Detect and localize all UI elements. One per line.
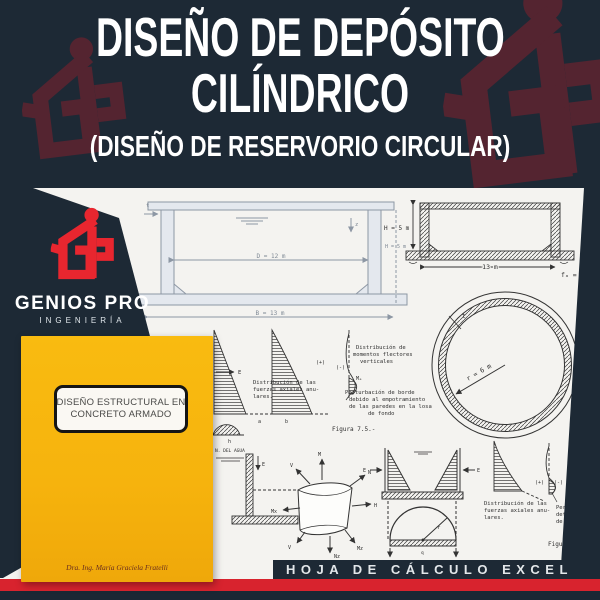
note-edge-line3: de las paredes en la losa [349, 404, 432, 410]
note-axial-2-line3: lares. [484, 515, 504, 521]
label-plus-1: (+) [316, 360, 325, 366]
distribution-diagrams: E a b (+) (-) Mₑ Distribución de las fue… [205, 330, 432, 433]
note-moments-line1: Distribución de [356, 344, 406, 351]
footer-banner-text: HOJA DE CÁLCULO EXCEL [273, 562, 573, 577]
water-level-label: N. DEL AGUA [215, 448, 245, 454]
label-e-1: E [238, 370, 241, 376]
book-cover: DISEÑO ESTRUCTURAL EN CONCRETO ARMADO Dr… [21, 336, 213, 582]
shell-label-h: H [374, 503, 377, 509]
label-plus-2: (+) [535, 480, 544, 486]
poster: D = 12 m B = 13 m H = 5 m z t H = 5 m 13… [0, 0, 600, 600]
circle-thickness-label: t [462, 313, 466, 320]
label-b: b [285, 419, 288, 425]
label-me: Mₑ [356, 376, 362, 382]
sketch-dim-height: H = 5 m [384, 225, 410, 232]
circle-radius-label: r = 6 m [465, 362, 493, 383]
note-moments-line3: verticales [360, 359, 393, 365]
tank-cross-section-diagram: D = 12 m B = 13 m H = 5 m z t [137, 202, 407, 317]
poster-title-line1: DISEÑO DE DEPÓSITO [96, 8, 504, 66]
shell-label-v: V [290, 463, 293, 469]
note-edge-line2: debido al empotramiento [349, 397, 425, 403]
label-minus-2: (-) [554, 480, 563, 486]
bottom-navy-strip [0, 591, 600, 600]
note-axial-2-line2: fuerzas axiales anu- [484, 508, 550, 514]
book-title-line2: CONCRETO ARMADO [70, 409, 171, 421]
note-edge2-line2: det [556, 512, 566, 518]
figure-caption-2: Figura [548, 541, 570, 548]
poster-title-line2: CILÍNDRICO [96, 64, 504, 122]
label-e-3: E [363, 468, 366, 474]
note-axial-1-line2: fuerzas axiales anu- [253, 387, 319, 393]
sketch-tank-section-diagram: H = 5 m 13 m fₐ = f [384, 203, 585, 279]
pressure-tank-diagram: E E r q [363, 448, 480, 557]
label-depth-z: z [355, 222, 358, 228]
sketch-stress-label: fₐ = f [561, 271, 585, 279]
brand-block: GENIOS PRO INGENIERÍA [0, 205, 165, 340]
note-axial-1-line1: Distribución de las [253, 379, 316, 386]
poster-subtitle: (DISEÑO DE RESERVORIO CIRCULAR) [66, 131, 534, 163]
book-author: Dra. Ing. María Graciela Fratelli [21, 563, 213, 572]
note-edge-line4: de fondo [368, 411, 395, 417]
note-edge2-line1: Per [556, 505, 567, 511]
shell-label-v2: V [288, 545, 291, 551]
book-title-box: DISEÑO ESTRUCTURAL EN CONCRETO ARMADO [54, 385, 188, 433]
sketch-dim-width: 13 m [482, 263, 498, 271]
circular-plan-diagram: r = 6 m t [432, 292, 578, 438]
footer-banner: HOJA DE CÁLCULO EXCEL [273, 560, 600, 579]
shell-element-diagram: V M N H Mx Nz Mz V [271, 452, 377, 560]
right-distribution-diagrams: (+) (-) Distribución de las fuerzas axia… [484, 441, 570, 548]
brand-name: GENIOS PRO [0, 293, 165, 315]
figure-caption-1: Figura 7.5.- [332, 426, 375, 433]
shell-label-m: M [318, 452, 321, 458]
label-minus-1: (-) [336, 365, 345, 371]
label-e-2: E [262, 462, 265, 468]
note-edge2-line3: de [556, 519, 563, 525]
label-a: a [258, 419, 261, 425]
label-q: q [421, 551, 424, 556]
shell-label-n: N [368, 470, 371, 476]
note-axial-1-line3: lares. [253, 394, 273, 400]
label-e-4: E [477, 468, 480, 474]
brand-tagline: INGENIERÍA [0, 316, 165, 325]
label-h: h [228, 439, 231, 445]
book-title-line1: DISEÑO ESTRUCTURAL EN [57, 397, 186, 409]
dim-diameter: D = 12 m [257, 253, 286, 260]
header-banner: DISEÑO DE DEPÓSITO CILÍNDRICO (DISEÑO DE… [0, 0, 600, 188]
dim-base: B = 13 m [256, 310, 285, 317]
note-edge-line1: Perturbación de borde [345, 389, 415, 396]
dim-height: H = 5 m [385, 244, 406, 250]
shell-label-mz: Mz [357, 546, 363, 552]
note-axial-2-line1: Distribución de las [484, 500, 547, 507]
label-r: r [437, 525, 441, 531]
note-moments-line2: momentos flectores [353, 352, 413, 358]
genios-pro-logo-icon [47, 205, 119, 291]
shell-label-mx: Mx [271, 509, 277, 515]
